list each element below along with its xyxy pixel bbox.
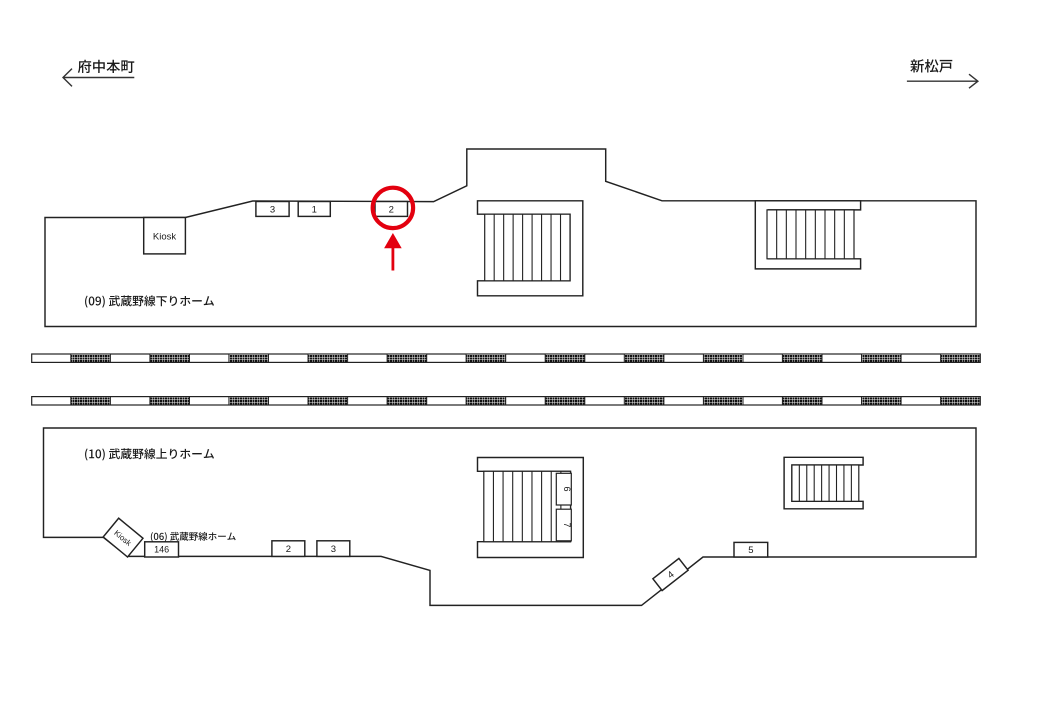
svg-text:3: 3 [270, 204, 275, 215]
svg-text:3: 3 [331, 544, 336, 555]
svg-text:7: 7 [562, 522, 572, 527]
svg-text:2: 2 [286, 544, 291, 555]
svg-text:2: 2 [389, 204, 394, 215]
svg-text:5: 5 [748, 545, 753, 556]
svg-text:146: 146 [154, 545, 169, 555]
svg-text:1: 1 [312, 204, 317, 215]
svg-text:Kiosk: Kiosk [153, 232, 176, 243]
svg-text:6: 6 [562, 486, 572, 491]
